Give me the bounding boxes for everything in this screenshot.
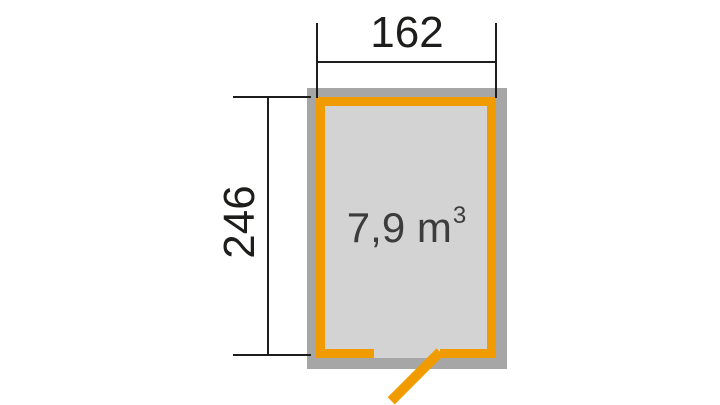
dimension-height-line <box>267 96 269 356</box>
dimension-height-tick-top <box>233 96 311 98</box>
dimension-height-tick-bottom <box>233 354 311 356</box>
dimension-width-tick-left <box>316 23 318 98</box>
volume-value: 7,9 m <box>347 204 452 252</box>
dimension-width-line <box>317 61 497 63</box>
floor-plan-diagram: 7,9 m3 162 246 <box>0 0 720 405</box>
dimension-height-label: 246 <box>218 162 262 282</box>
volume-label: 7,9 m3 <box>316 200 496 256</box>
dimension-width-tick-right <box>495 23 497 98</box>
dimension-width-label: 162 <box>317 11 497 55</box>
